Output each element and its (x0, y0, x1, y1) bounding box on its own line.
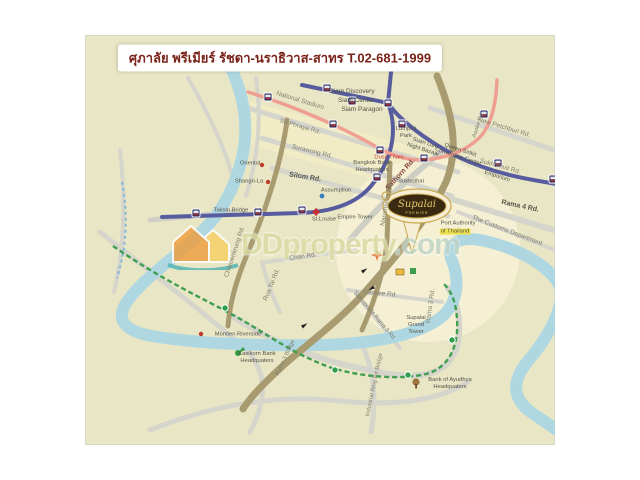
logo-sub: PREMIER (406, 211, 429, 215)
project-halo (336, 158, 520, 342)
school-dot-icon (320, 194, 325, 199)
hotel-dot-icon (199, 332, 203, 336)
brt-sign-icon (396, 269, 404, 275)
hotel-dot-icon (260, 163, 264, 167)
park-sign-icon (410, 268, 416, 274)
map-image: Supalai PREMIER (85, 35, 555, 445)
map-title: ศุภาลัย พรีเมียร์ รัชดา-นราธิวาส-สาทร T.… (118, 45, 442, 72)
hotel-dot-icon (266, 180, 270, 184)
logo-name: Supalai (398, 199, 436, 210)
map-canvas: Supalai PREMIER DDproperty.com Siam Disc… (0, 0, 640, 480)
